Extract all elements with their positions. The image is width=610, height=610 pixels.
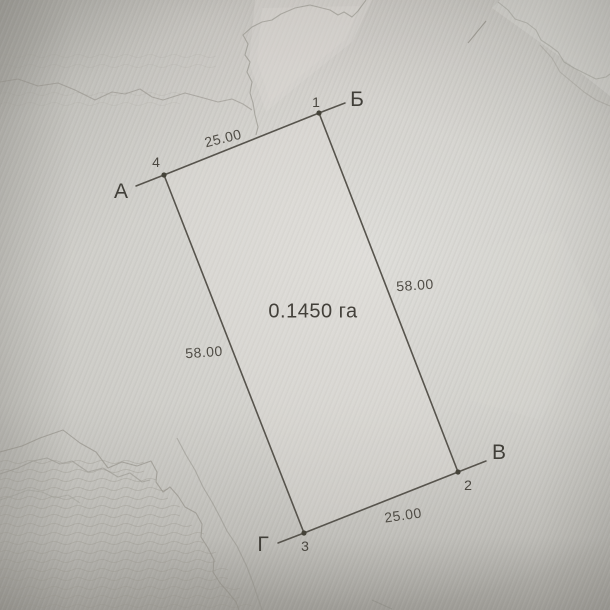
dimension-right: 58.00 <box>396 276 435 295</box>
survey-plan-photo: А Б В Г 1 2 3 4 25.00 58.00 25.00 58.00 … <box>0 0 610 610</box>
corner-number-3: 3 <box>301 538 309 554</box>
corner-number-4: 4 <box>152 154 160 170</box>
dimension-left: 58.00 <box>185 343 224 362</box>
corner-letter-a: А <box>114 180 128 204</box>
parcel-area-label: 0.1450 га <box>268 301 357 324</box>
corner-letter-v: В <box>492 441 506 465</box>
terrain-hatching-faint-top <box>0 55 216 106</box>
corner-number-1: 1 <box>312 94 320 110</box>
corner-number-2: 2 <box>464 477 472 493</box>
terrain-hatching <box>0 461 252 608</box>
corner-letter-g: Г <box>257 533 268 557</box>
corner-letter-b: Б <box>350 88 364 112</box>
